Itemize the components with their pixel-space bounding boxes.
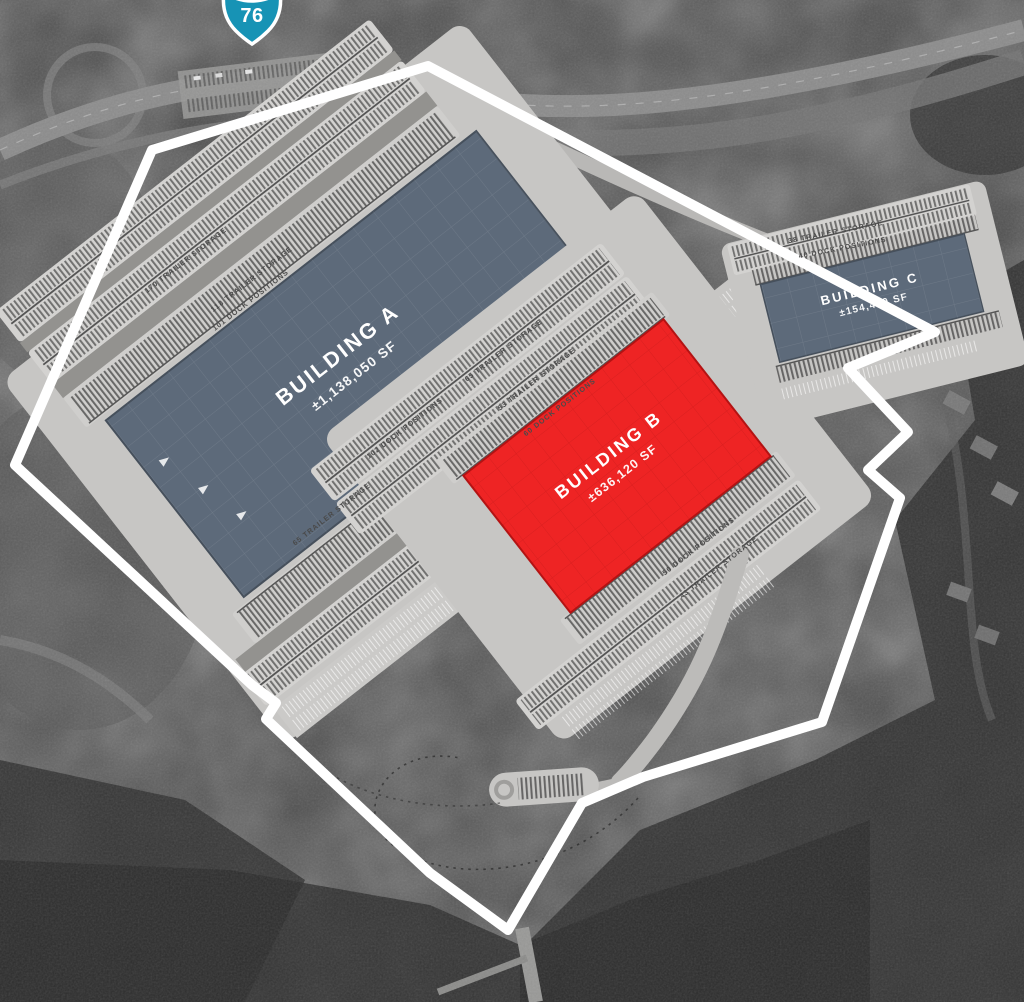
- site-plan-map: BUILDING A ±1,138,050 SF: [0, 0, 1024, 1002]
- shield-number: 76: [240, 5, 263, 27]
- site-plan-canvas: BUILDING A ±1,138,050 SF: [0, 0, 1024, 1002]
